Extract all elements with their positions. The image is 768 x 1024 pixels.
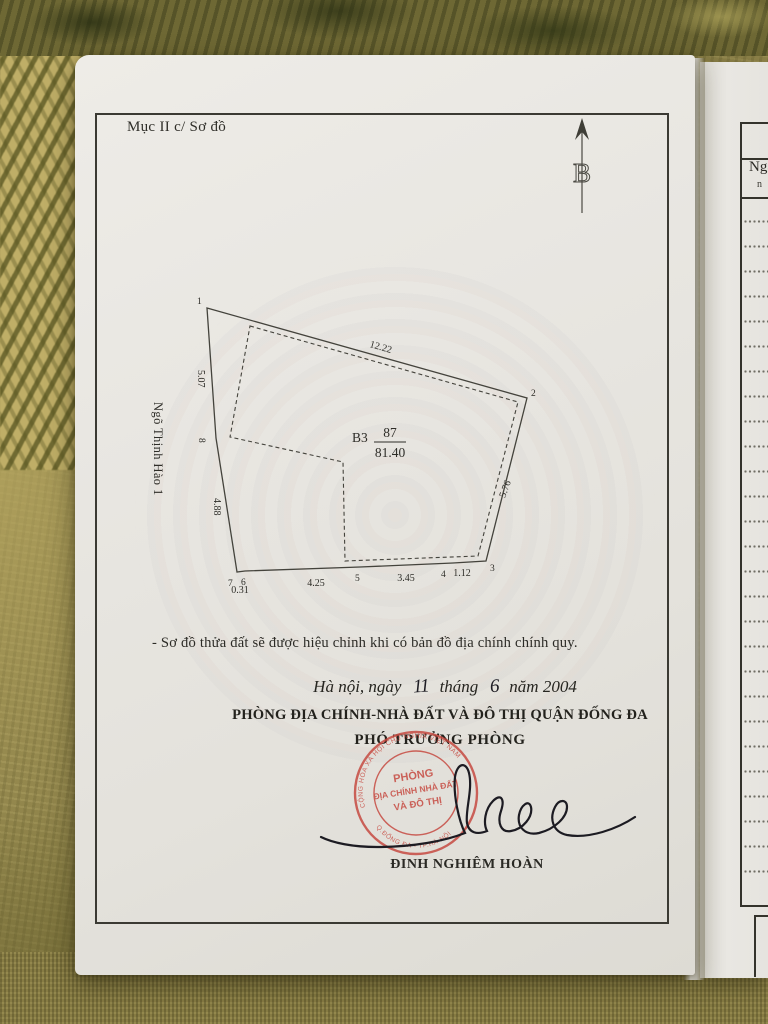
edge-length-bottom-4: 1.12: [453, 568, 471, 579]
parcel-code: B3: [352, 430, 368, 445]
section-frame: Mục II c/ Sơ đồ B 1 2 3 4 5 6 7 8 12.22 …: [95, 113, 669, 924]
vertex-label: 2: [531, 389, 536, 399]
note-text: - Sơ đồ thửa đất sẽ được hiệu chỉnh khi …: [152, 635, 638, 652]
lot-number: 87: [383, 425, 397, 440]
left-page: Mục II c/ Sơ đồ B 1 2 3 4 5 6 7 8 12.22 …: [75, 55, 695, 975]
edge-length-left-lower: 4.88: [211, 498, 222, 516]
date-line: Hà nội, ngày 11 tháng 6 năm 2004: [215, 676, 675, 698]
right-page: Ngà n: [700, 62, 768, 978]
tablecloth-leaf-border: [0, 0, 768, 56]
date-month-word: tháng: [440, 677, 479, 696]
handwritten-day: 11: [405, 675, 436, 699]
signature-ink: [317, 755, 652, 855]
adjacent-column-header: Ngà: [749, 159, 768, 176]
table-top-border: [740, 122, 768, 124]
section-title: Mục II c/ Sơ đồ: [127, 119, 226, 136]
street-name: Ngõ Thịnh Hào 1: [151, 402, 165, 496]
edge-length-bottom-1: 0.31: [231, 585, 249, 596]
handwritten-month: 6: [482, 675, 506, 699]
back-frame-corner-v: [754, 915, 756, 977]
dotted-rows: [744, 220, 768, 876]
parcel-boundary-dashed: [230, 326, 518, 561]
date-year-word: năm: [509, 677, 538, 696]
date-year: 2004: [543, 677, 577, 696]
svg-text:B: B: [573, 158, 591, 188]
edge-length-top: 12.22: [368, 339, 393, 356]
vertex-label: 3: [490, 564, 495, 574]
parcel-diagram: 1 2 3 4 5 6 7 8 12.22 5.07 4.88 5.76 0.3…: [140, 290, 640, 620]
parcel-area: 81.40: [375, 445, 406, 460]
table-header-bottom-border: [740, 197, 768, 199]
north-arrow-icon: B: [555, 116, 611, 221]
edge-length-right: 5.76: [497, 479, 513, 499]
edge-length-left-upper: 5.07: [195, 370, 206, 388]
signer-name: ĐINH NGHIÊM HOÀN: [317, 857, 617, 873]
vertex-label: 4: [441, 570, 446, 580]
vertex-label: 1: [197, 297, 202, 307]
adjacent-column-subheader: n: [757, 179, 762, 190]
table-bottom-border: [740, 905, 768, 907]
edge-length-bottom-3: 3.45: [397, 573, 415, 584]
date-place-prefix: Hà nội, ngày: [313, 677, 401, 696]
table-vertical-border: [740, 122, 742, 905]
vertex-label: 5: [355, 574, 360, 584]
edge-length-bottom-2: 4.25: [307, 578, 325, 589]
back-frame-corner-h: [754, 915, 768, 917]
vertex-label: 8: [196, 438, 206, 443]
